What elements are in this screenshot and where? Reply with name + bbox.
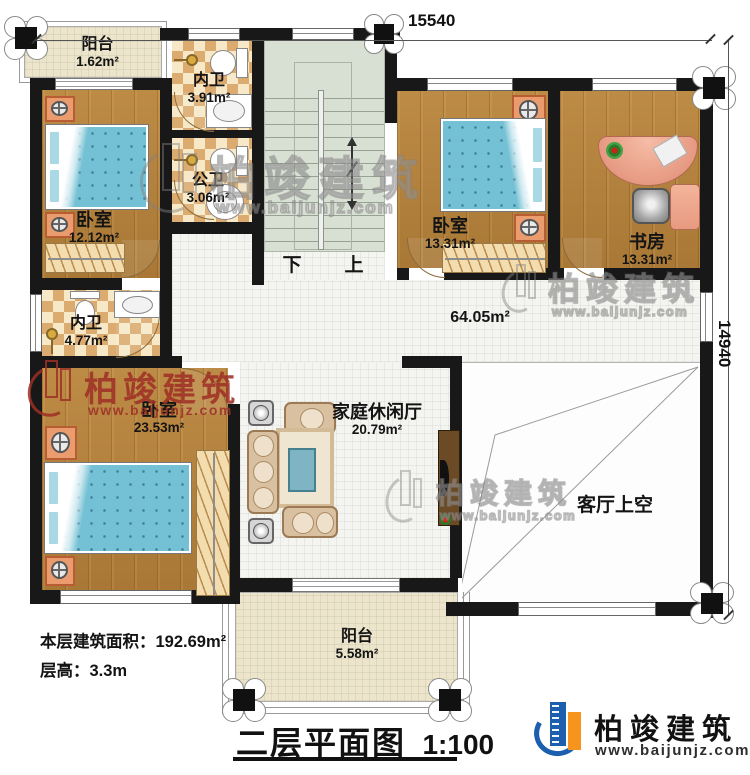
corner-column-icon bbox=[428, 678, 472, 722]
coffee-table bbox=[288, 448, 316, 492]
room-area: 1.62m² bbox=[55, 54, 140, 69]
plan-scale: 1:100 bbox=[422, 729, 494, 760]
logo-building-icon bbox=[550, 702, 566, 746]
room-label-bath-mid: 内卫 4.77m² bbox=[36, 315, 136, 348]
room-area: 3.91m² bbox=[166, 90, 252, 105]
floor-area-note: 本层建筑面积：192.69m² bbox=[40, 628, 226, 652]
room-label-study: 书房 13.31m² bbox=[590, 232, 704, 267]
title-underline bbox=[233, 757, 457, 761]
nightstand bbox=[45, 426, 77, 460]
corner-column-icon bbox=[692, 66, 736, 110]
dimension-right-value: 14940 bbox=[714, 320, 734, 367]
room-name: 内卫 bbox=[36, 315, 136, 333]
window bbox=[700, 292, 713, 342]
room-name: 阳台 bbox=[314, 628, 400, 646]
room-name: 阳台 bbox=[55, 36, 140, 54]
room-label-balcony-bottom: 阳台 5.58m² bbox=[314, 628, 400, 661]
toilet-tank bbox=[70, 291, 100, 299]
stairs-up-label: 上 bbox=[334, 250, 374, 277]
watermark-text: 柏竣建筑 bbox=[436, 472, 572, 512]
room-area: 20.79m² bbox=[308, 422, 446, 437]
shower-arm bbox=[174, 59, 188, 61]
corridor-floor bbox=[172, 234, 252, 282]
room-name: 卧室 bbox=[38, 210, 150, 230]
watermark-logo-icon bbox=[140, 143, 206, 215]
corner-column-icon bbox=[364, 14, 404, 54]
watermark-url: www.baijunjz.com bbox=[552, 304, 688, 319]
wall-segment bbox=[397, 268, 409, 280]
room-area: 12.12m² bbox=[38, 230, 150, 245]
nightstand bbox=[45, 96, 75, 122]
floor-plan: 阳台 1.62m² 内卫 3.91m² 公卫 3.06m² 卧室 12.12m²… bbox=[0, 0, 750, 775]
room-area: 4.77m² bbox=[36, 333, 136, 348]
wall-segment bbox=[700, 78, 713, 618]
wardrobe bbox=[196, 450, 230, 596]
wall-segment bbox=[400, 578, 458, 592]
room-name: 书房 bbox=[590, 232, 704, 252]
window bbox=[592, 78, 677, 91]
room-area: 23.53m² bbox=[100, 420, 218, 435]
wall-segment bbox=[548, 90, 560, 280]
lamp-table bbox=[248, 518, 274, 544]
stairs-down-label: 下 bbox=[272, 250, 312, 277]
office-chair bbox=[632, 188, 670, 224]
room-name: 卧室 bbox=[394, 216, 506, 236]
corner-column-icon bbox=[4, 16, 48, 60]
washbasin bbox=[114, 291, 160, 318]
wall-segment bbox=[160, 222, 264, 234]
watermark-url: www.baijunjz.com bbox=[440, 508, 576, 523]
watermark-logo-icon bbox=[28, 360, 78, 418]
brand-website: www.baijunjz.com bbox=[595, 742, 750, 759]
plant-icon bbox=[606, 142, 623, 159]
room-name: 家庭休闲厅 bbox=[308, 402, 446, 422]
window bbox=[427, 78, 513, 91]
window bbox=[60, 590, 192, 604]
room-label-bedroom-1: 卧室 12.12m² bbox=[38, 210, 150, 245]
logo-building-icon bbox=[568, 712, 581, 750]
nightstand bbox=[514, 214, 546, 242]
dimension-top-value: 15540 bbox=[408, 11, 455, 31]
window bbox=[188, 28, 240, 40]
room-label-family-hall: 家庭休闲厅 20.79m² bbox=[308, 402, 446, 437]
wardrobe bbox=[45, 243, 125, 273]
window bbox=[292, 28, 354, 40]
room-label-bath-top: 内卫 3.91m² bbox=[166, 72, 252, 105]
window bbox=[518, 602, 656, 616]
room-area: 5.58m² bbox=[314, 646, 400, 661]
floor-height-note: 层高：3.3m bbox=[40, 657, 127, 681]
bed bbox=[45, 124, 149, 210]
watermark-logo-icon bbox=[502, 264, 542, 314]
sofa bbox=[247, 430, 279, 514]
room-label-bedroom-2: 卧室 13.31m² bbox=[394, 216, 506, 251]
bed bbox=[44, 462, 192, 554]
watermark-url: www.baijunjz.com bbox=[88, 402, 233, 418]
dimension-line-top bbox=[36, 40, 712, 41]
armchair bbox=[282, 506, 338, 538]
watermark-url: www.baijunjz.com bbox=[216, 198, 395, 218]
wall-segment bbox=[30, 278, 122, 290]
room-name: 内卫 bbox=[166, 72, 252, 90]
nightstand bbox=[45, 556, 75, 586]
side-table bbox=[670, 184, 700, 230]
room-area: 13.31m² bbox=[394, 236, 506, 251]
dimension-tick bbox=[705, 34, 716, 45]
balcony-sliding-door bbox=[292, 578, 400, 592]
corner-column-icon bbox=[222, 678, 266, 722]
plan-title: 二层平面图 bbox=[236, 725, 406, 761]
watermark-logo-icon bbox=[386, 470, 428, 524]
bed bbox=[440, 118, 546, 212]
balcony-sliding-door bbox=[55, 78, 133, 90]
lamp-table bbox=[248, 400, 274, 426]
brand-logo-block: 柏竣建筑 www.baijunjz.com bbox=[534, 700, 734, 764]
